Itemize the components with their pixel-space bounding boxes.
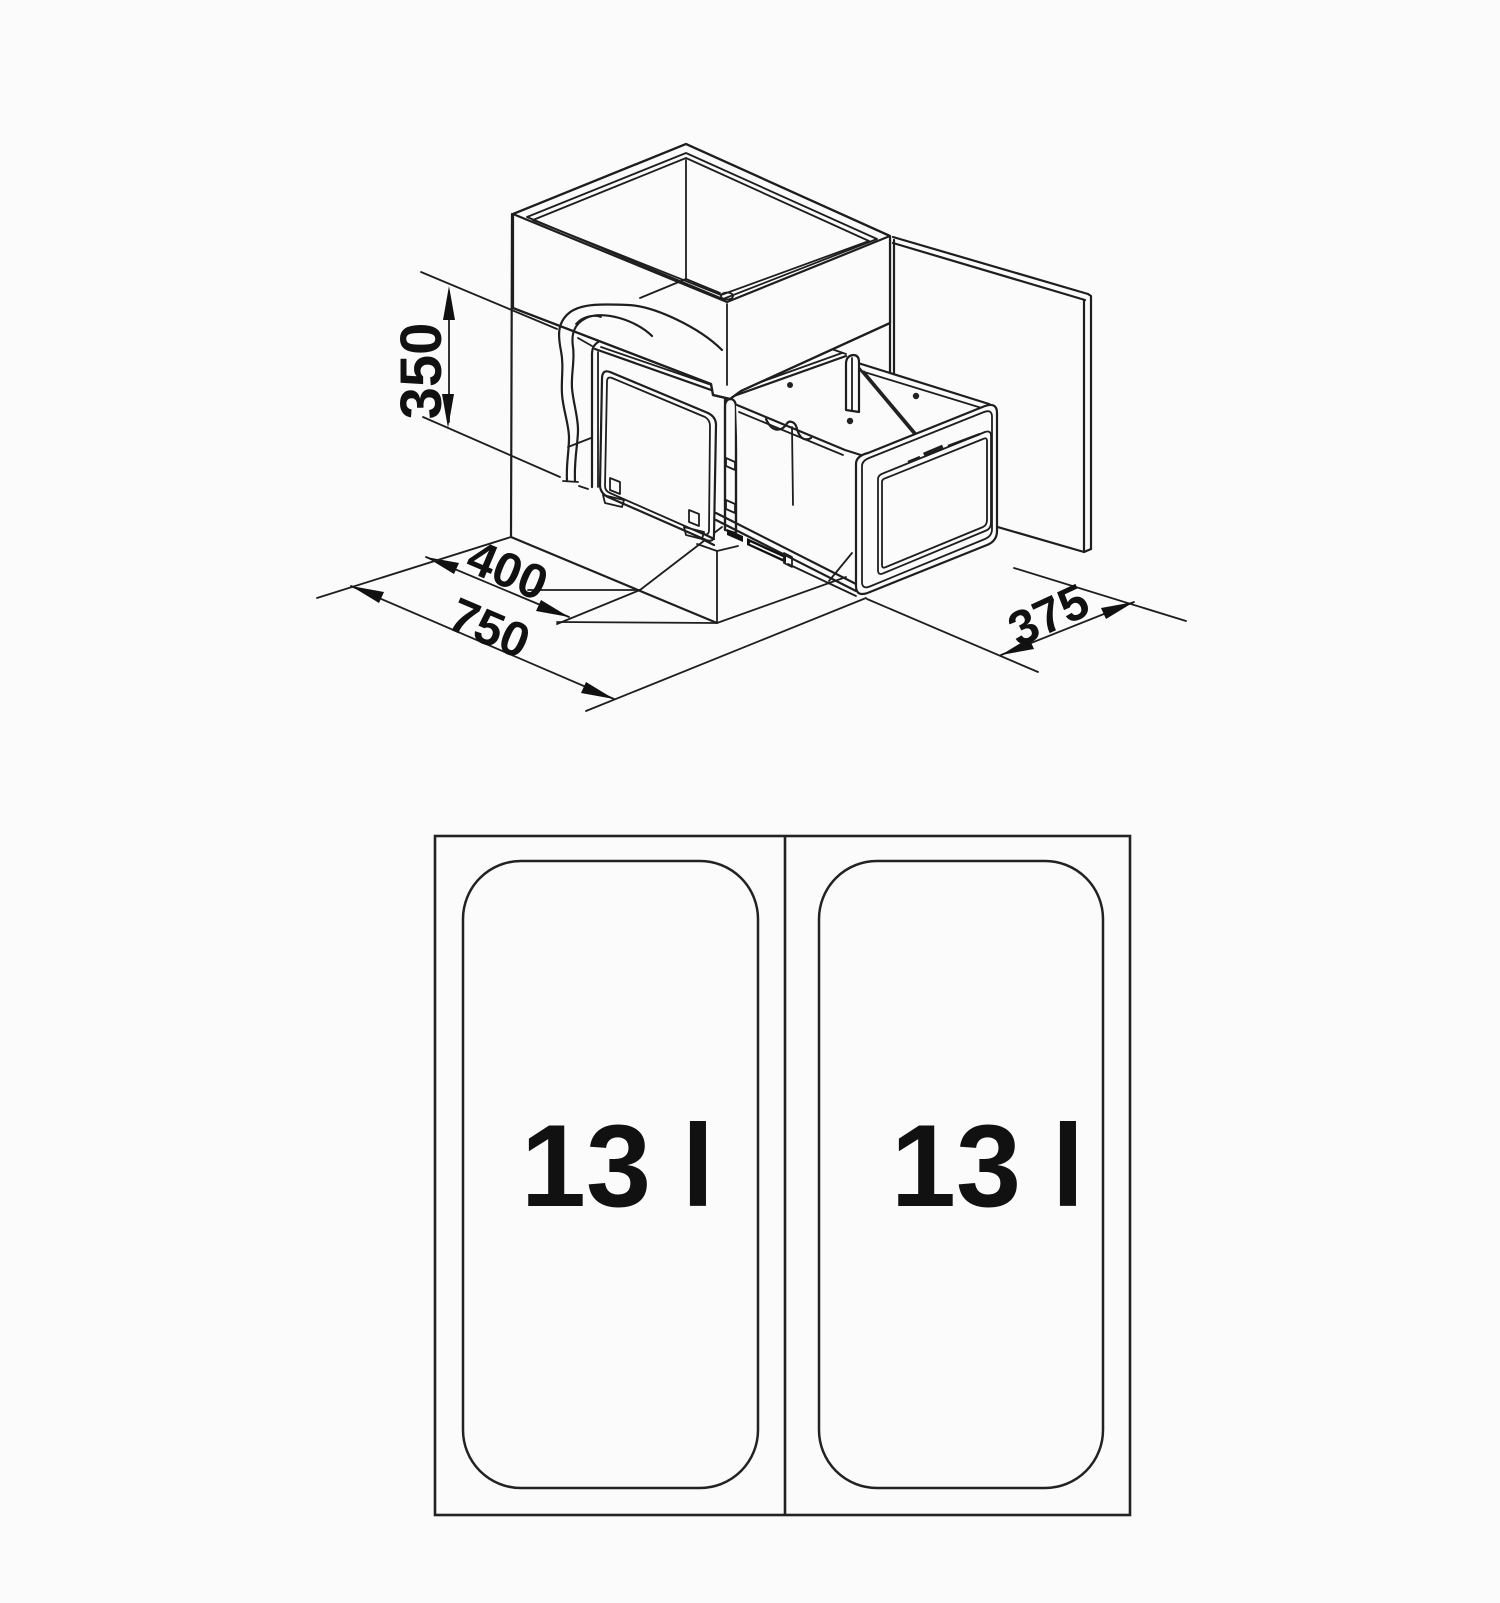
- svg-text:350: 350: [389, 323, 454, 420]
- svg-text:l: l: [682, 1100, 715, 1231]
- svg-text:13: 13: [521, 1100, 651, 1231]
- svg-text:l: l: [1052, 1100, 1085, 1231]
- svg-text:13: 13: [891, 1100, 1021, 1231]
